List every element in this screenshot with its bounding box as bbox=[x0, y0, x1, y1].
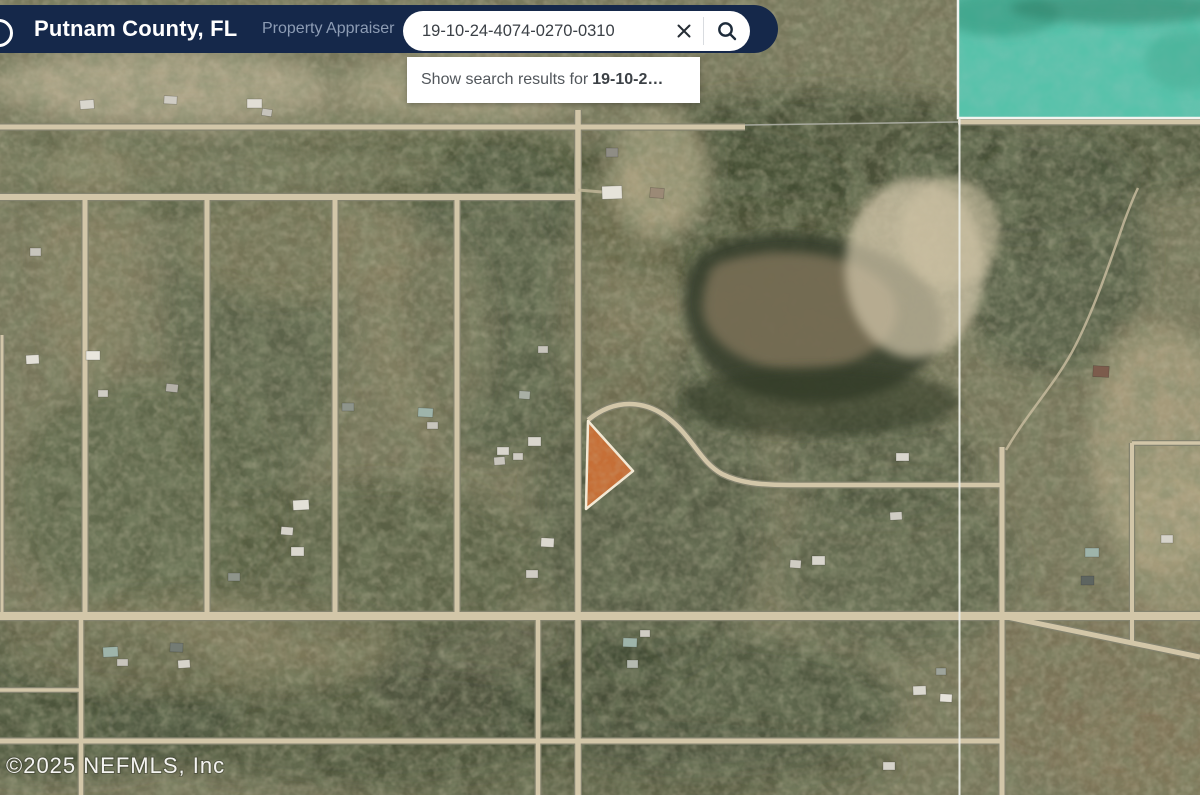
x-icon bbox=[676, 23, 692, 39]
suggestion-query: 19-10-2… bbox=[592, 71, 663, 89]
clear-search-button[interactable] bbox=[665, 11, 703, 51]
search-button[interactable] bbox=[704, 11, 750, 51]
search-bar bbox=[403, 11, 750, 51]
header-bar: Putnam County, FL Property Appraiser bbox=[0, 5, 778, 53]
map-attribution: ©2025 NEFMLS, Inc bbox=[6, 753, 225, 778]
site-subtitle: Property Appraiser bbox=[262, 5, 395, 53]
search-suggestion-item[interactable]: Show search results for 19-10-2… bbox=[407, 57, 700, 103]
aerial-map[interactable]: ©2025 NEFMLS, Inc bbox=[0, 0, 1200, 795]
suggestion-prefix: Show search results for bbox=[421, 71, 588, 89]
property-appraiser-page: { "header": { "title": "Putnam County, F… bbox=[0, 0, 1200, 795]
water-overlay bbox=[940, 0, 1200, 118]
site-title: Putnam County, FL bbox=[34, 5, 237, 53]
map-canvas[interactable]: ©2025 NEFMLS, Inc bbox=[0, 0, 1200, 795]
magnifier-icon bbox=[716, 20, 738, 42]
search-input[interactable] bbox=[403, 22, 665, 41]
county-logo-icon bbox=[0, 19, 13, 47]
